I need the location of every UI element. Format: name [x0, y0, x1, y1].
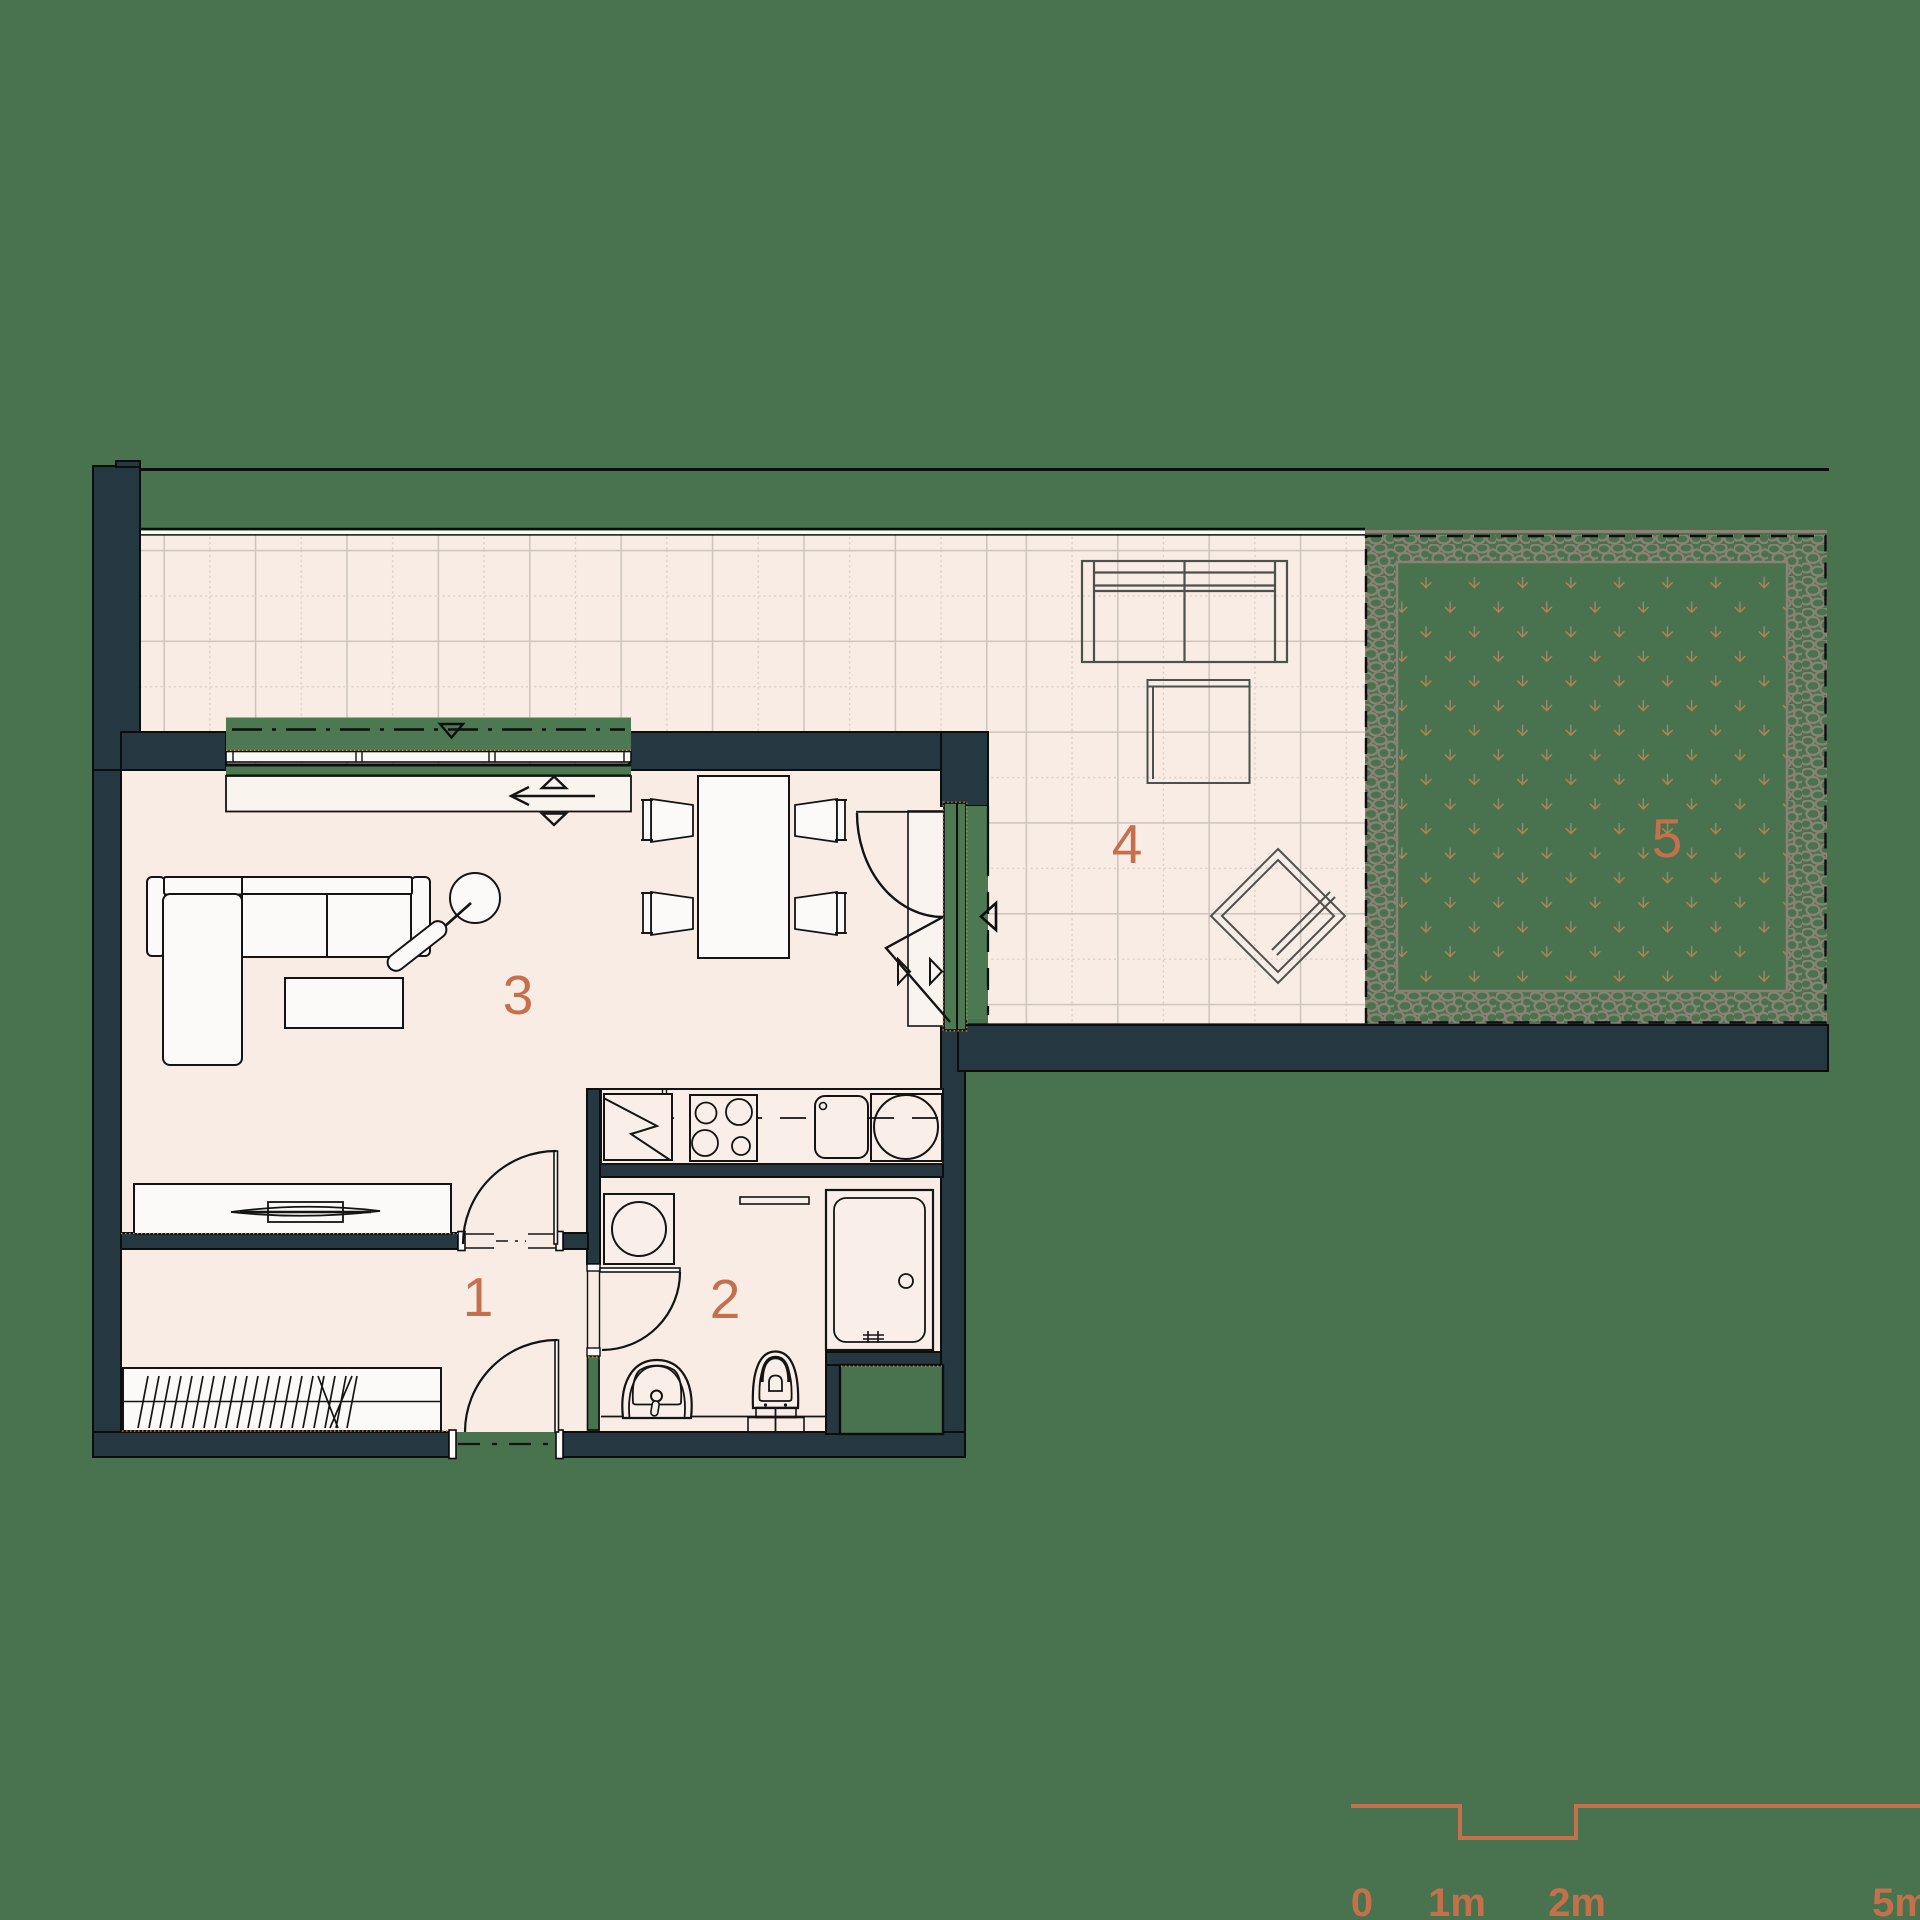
- svg-text:1m: 1m: [1428, 1881, 1486, 1920]
- svg-text:5m: 5m: [1872, 1881, 1920, 1920]
- svg-text:2m: 2m: [1548, 1881, 1606, 1920]
- svg-text:5: 5: [1652, 807, 1683, 869]
- svg-text:1: 1: [463, 1266, 494, 1328]
- svg-text:2: 2: [710, 1268, 741, 1330]
- svg-text:4: 4: [1112, 813, 1143, 875]
- svg-text:0: 0: [1351, 1881, 1373, 1920]
- svg-text:3: 3: [503, 964, 534, 1026]
